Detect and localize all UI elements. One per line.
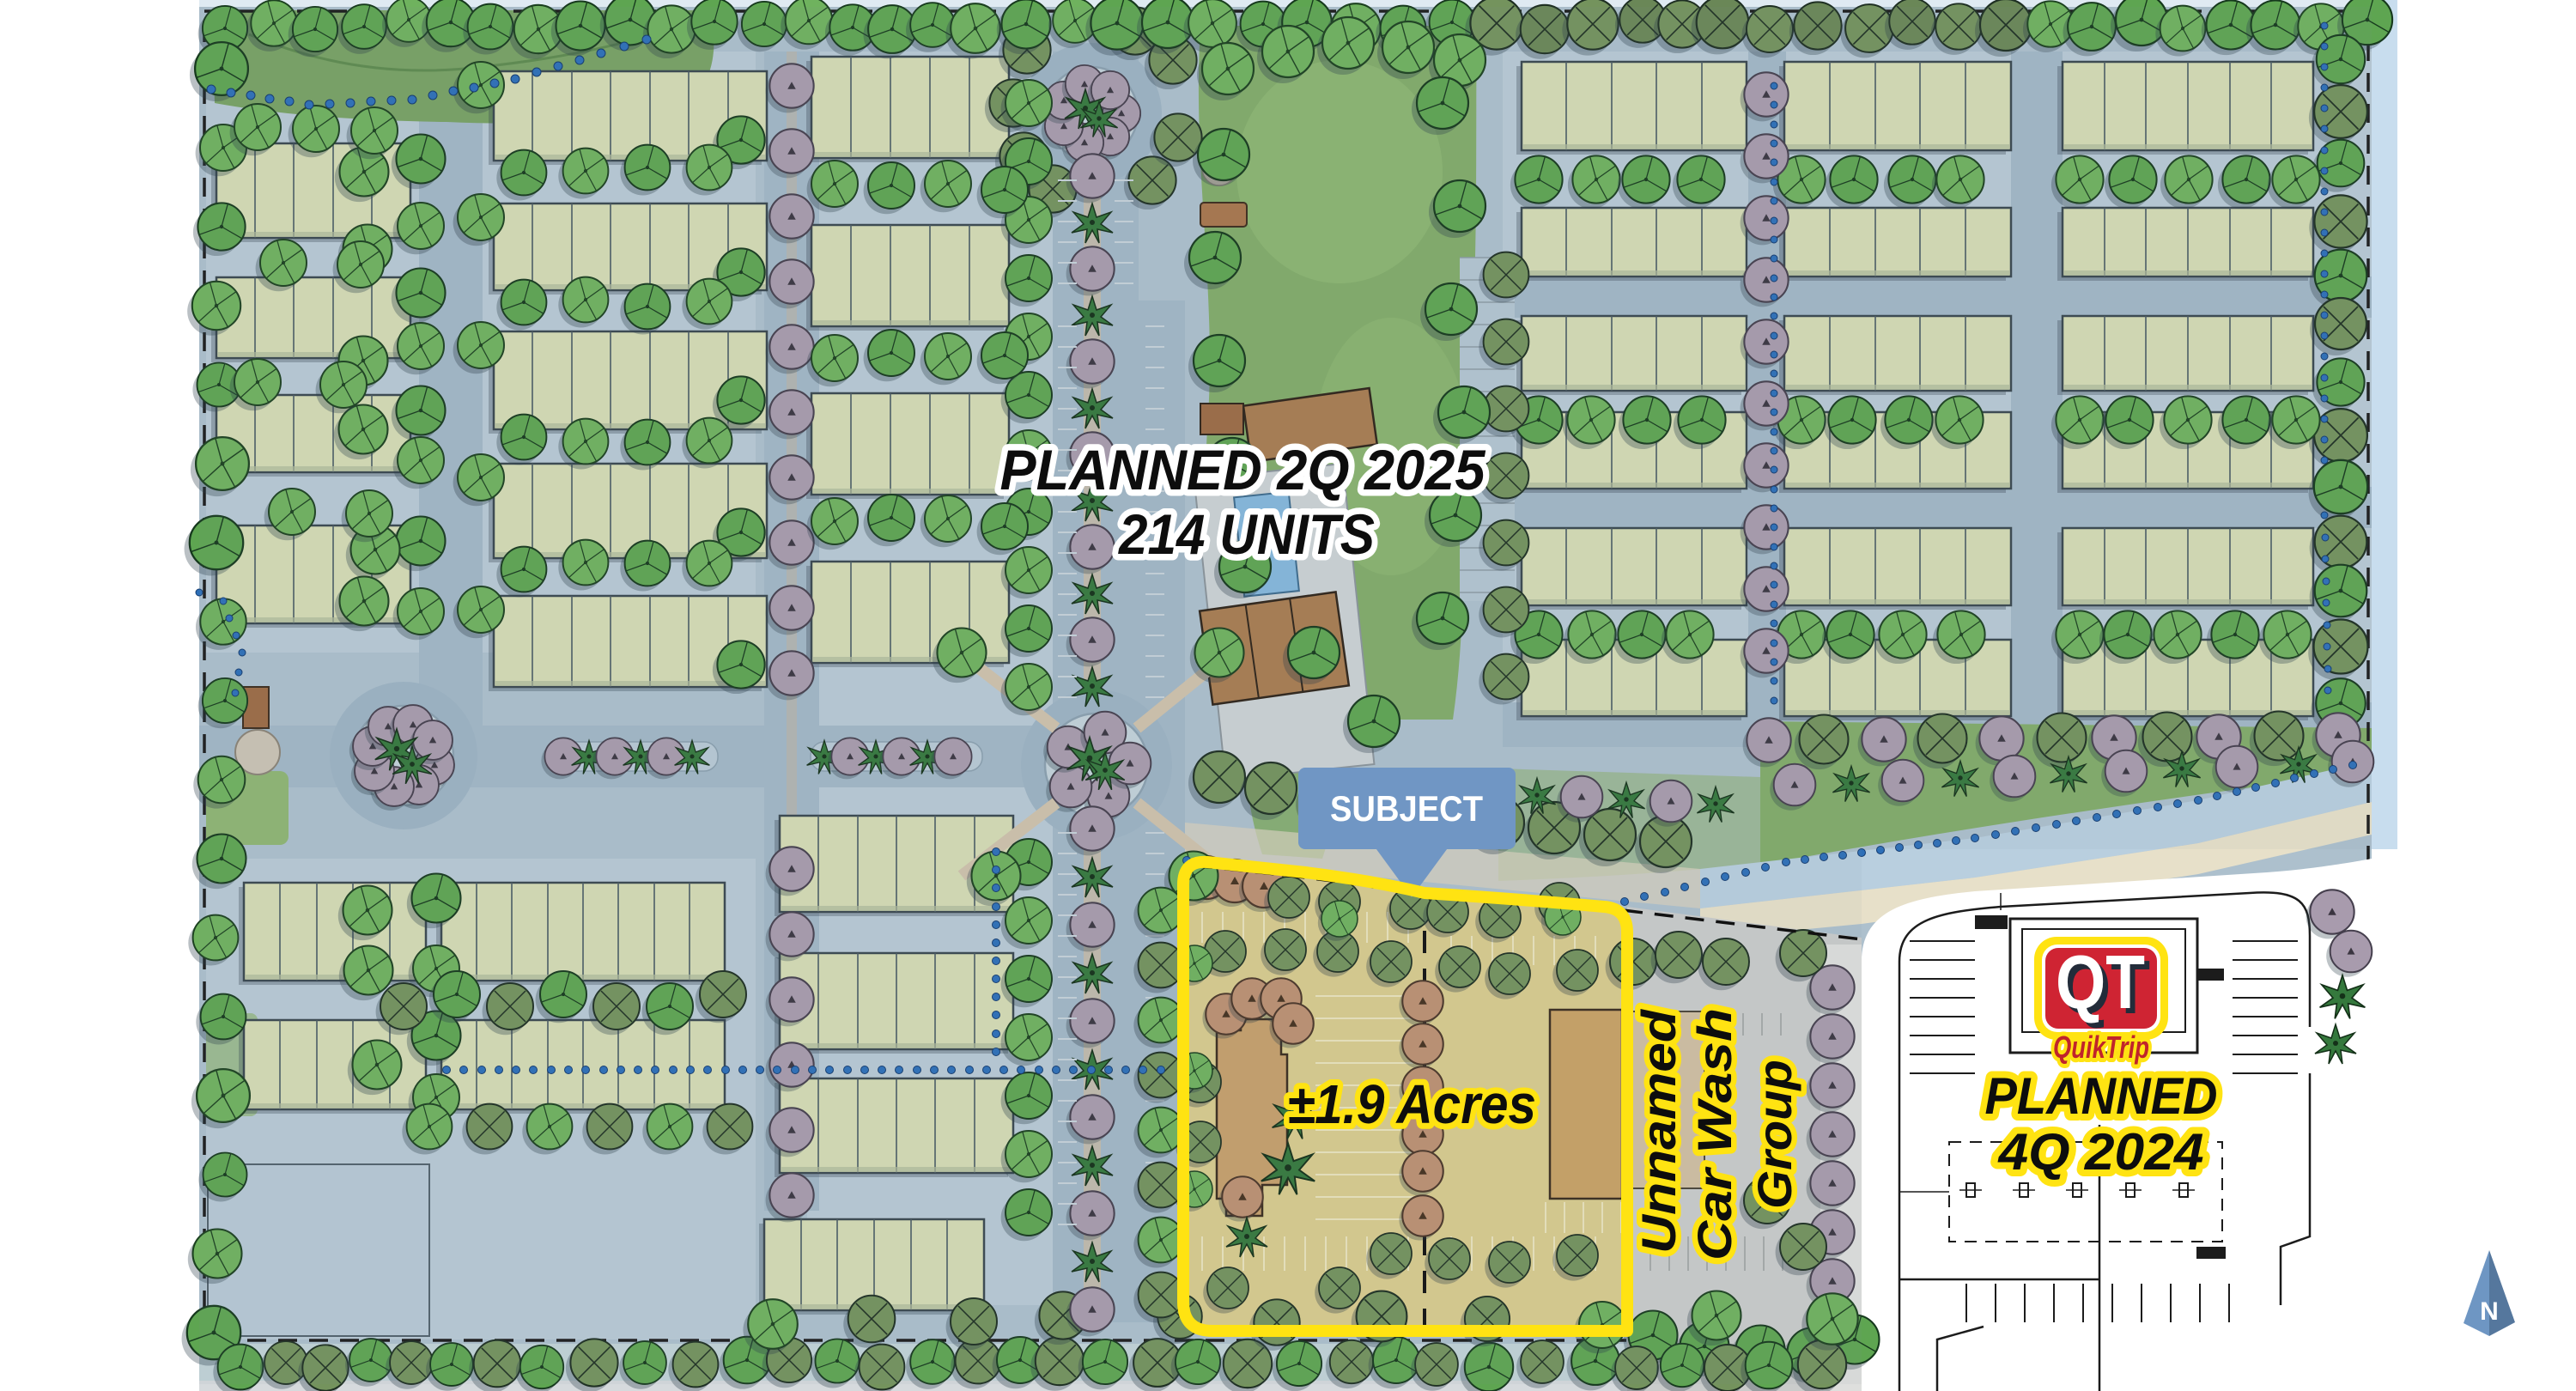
svg-text:±1.9 Acres: ±1.9 Acres: [1287, 1073, 1536, 1135]
svg-text:Group: Group: [1747, 1060, 1801, 1209]
svg-text:PLANNED: PLANNED: [1985, 1067, 2218, 1125]
svg-text:N: N: [2480, 1297, 2499, 1326]
svg-text:Car Wash: Car Wash: [1687, 1008, 1741, 1260]
svg-text:Unnamed: Unnamed: [1631, 1008, 1686, 1254]
svg-text:SUBJECT: SUBJECT: [1330, 788, 1483, 829]
svg-text:QT: QT: [2056, 939, 2145, 1024]
svg-text:4Q 2024: 4Q 2024: [1997, 1123, 2203, 1181]
svg-text:214 UNITS: 214 UNITS: [1117, 502, 1375, 566]
svg-text:PLANNED 2Q 2025: PLANNED 2Q 2025: [1000, 438, 1486, 501]
svg-text:QuikTrip: QuikTrip: [2053, 1030, 2149, 1065]
